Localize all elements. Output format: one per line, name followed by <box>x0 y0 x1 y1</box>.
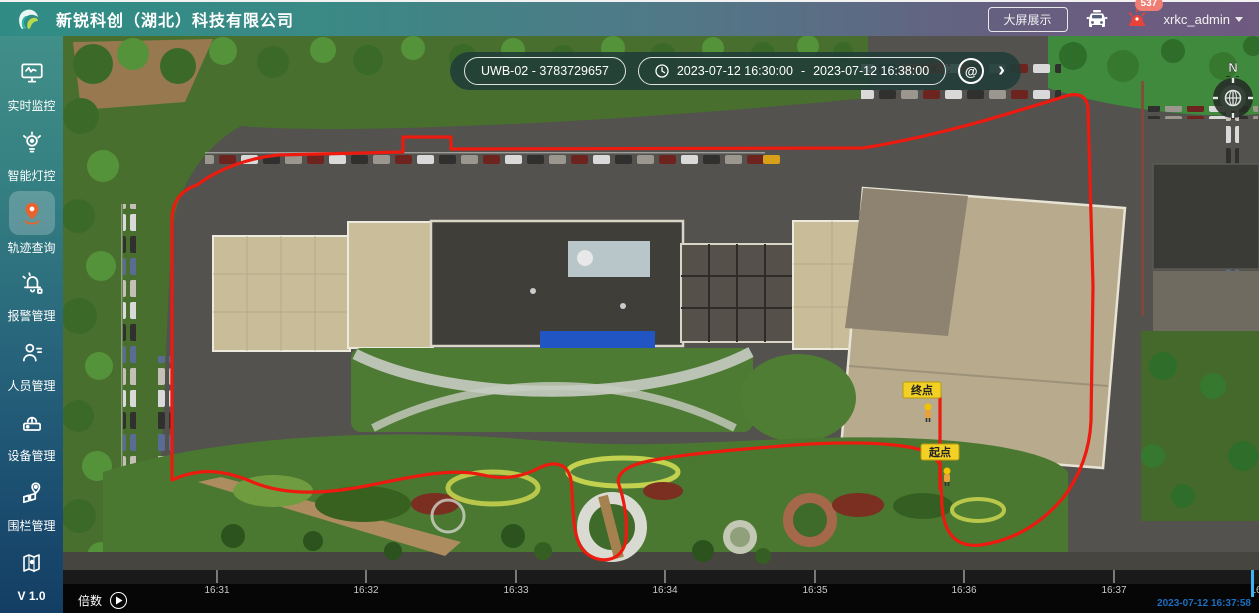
fence-pin-icon <box>9 473 55 513</box>
device-select-value: UWB-02 - 3783729657 <box>481 64 609 78</box>
alarm-count-badge: 537 <box>1135 0 1164 11</box>
play-icon <box>115 596 123 605</box>
search-button[interactable]: @ <box>958 58 984 84</box>
caret-down-icon <box>1235 17 1243 22</box>
search-icon: @ <box>965 64 978 79</box>
map-icon <box>9 543 55 583</box>
alarm-notification[interactable]: 537 <box>1126 7 1148 32</box>
sidebar-item-label: 设备管理 <box>7 447 55 464</box>
query-toolbar: UWB-02 - 3783729657 2023-07-12 16:30:00 … <box>450 52 1021 90</box>
sidebar-nav: 实时监控 智能灯控 轨迹查询 <box>0 36 63 613</box>
svg-text:起点: 起点 <box>928 445 951 459</box>
sidebar-item-realtime-monitor[interactable]: 实时监控 <box>0 48 63 118</box>
sidebar-item-fence-mgmt[interactable]: 围栏管理 <box>0 468 63 538</box>
sidebar-item-label: 轨迹查询 <box>7 239 55 256</box>
patrol-car-icon[interactable] <box>1084 9 1110 29</box>
sidebar-item-alarm-mgmt[interactable]: 报警管理 <box>0 258 63 328</box>
time-from: 2023-07-12 16:30:00 <box>677 64 793 78</box>
app-root: 新锐科创（湖北）科技有限公司 大屏展示 537 <box>0 0 1259 613</box>
sidebar-item-smart-light[interactable]: 智能灯控 <box>0 118 63 188</box>
monitor-icon <box>9 53 55 93</box>
device-icon <box>9 403 55 443</box>
sidebar-item-trajectory-query[interactable]: 轨迹查询 <box>0 188 63 258</box>
timeline-tick: 16:34 <box>652 570 677 596</box>
time-range-picker[interactable]: 2023-07-12 16:30:00 - 2023-07-12 16:38:0… <box>638 57 946 85</box>
map-courtyard <box>351 348 856 442</box>
page-title: 新锐科创（湖北）科技有限公司 <box>56 7 294 31</box>
timeline-tick: 16:36 <box>951 570 976 596</box>
chevron-right-icon[interactable]: › <box>996 60 1009 82</box>
svg-text:终点: 终点 <box>911 383 933 397</box>
sidebar-item-label: 智能灯控 <box>7 167 55 184</box>
play-button[interactable] <box>110 592 127 609</box>
speed-label: 倍数 <box>78 592 102 609</box>
version-label: V 1.0 <box>17 589 45 603</box>
top-header: 新锐科创（湖北）科技有限公司 大屏展示 537 <box>0 0 1259 36</box>
map-viewport[interactable]: 当前位置：张三 终点 起点 N <box>63 36 1259 570</box>
big-screen-button[interactable]: 大屏展示 <box>988 7 1068 32</box>
user-menu[interactable]: xrkc_admin <box>1164 12 1243 27</box>
smart-light-icon <box>9 123 55 163</box>
username: xrkc_admin <box>1164 12 1230 27</box>
current-playback-time: 2023-07-12 16:37:58 <box>1157 598 1251 609</box>
time-to: 2023-07-12 16:38:00 <box>813 64 929 78</box>
timeline-tick: 16:35 <box>802 570 827 596</box>
sidebar-item-personnel-mgmt[interactable]: 人员管理 <box>0 328 63 398</box>
company-logo-icon <box>14 6 40 32</box>
playback-timeline: 16:31 16:32 16:33 16:34 16:35 16:36 16:3… <box>63 570 1259 613</box>
person-icon <box>9 333 55 373</box>
time-separator: - <box>801 64 805 78</box>
timeline-playhead[interactable] <box>1251 570 1254 597</box>
device-select[interactable]: UWB-02 - 3783729657 <box>464 57 626 85</box>
sidebar-item-label: 围栏管理 <box>7 517 55 534</box>
playback-controls: 倍数 <box>78 592 127 609</box>
sidebar-item-map[interactable] <box>0 540 63 586</box>
sidebar-item-label: 人员管理 <box>7 377 55 394</box>
alarm-bell-icon <box>9 263 55 303</box>
timeline-tick: 16:31 <box>204 570 229 596</box>
header-actions: 大屏展示 537 xrkc_admin <box>988 7 1243 32</box>
clock-icon <box>655 64 669 78</box>
aerial-map[interactable]: 当前位置：张三 终点 起点 N <box>63 36 1259 570</box>
compass-north-label: N <box>1228 60 1237 75</box>
trajectory-pin-icon <box>9 191 55 235</box>
timeline-tick: 16:33 <box>503 570 528 596</box>
timeline-tick: 16:32 <box>353 570 378 596</box>
sidebar-item-label: 报警管理 <box>7 307 55 324</box>
timeline-tick: 16:37 <box>1101 570 1126 596</box>
sidebar-item-label: 实时监控 <box>7 97 55 114</box>
sidebar-item-device-mgmt[interactable]: 设备管理 <box>0 398 63 468</box>
